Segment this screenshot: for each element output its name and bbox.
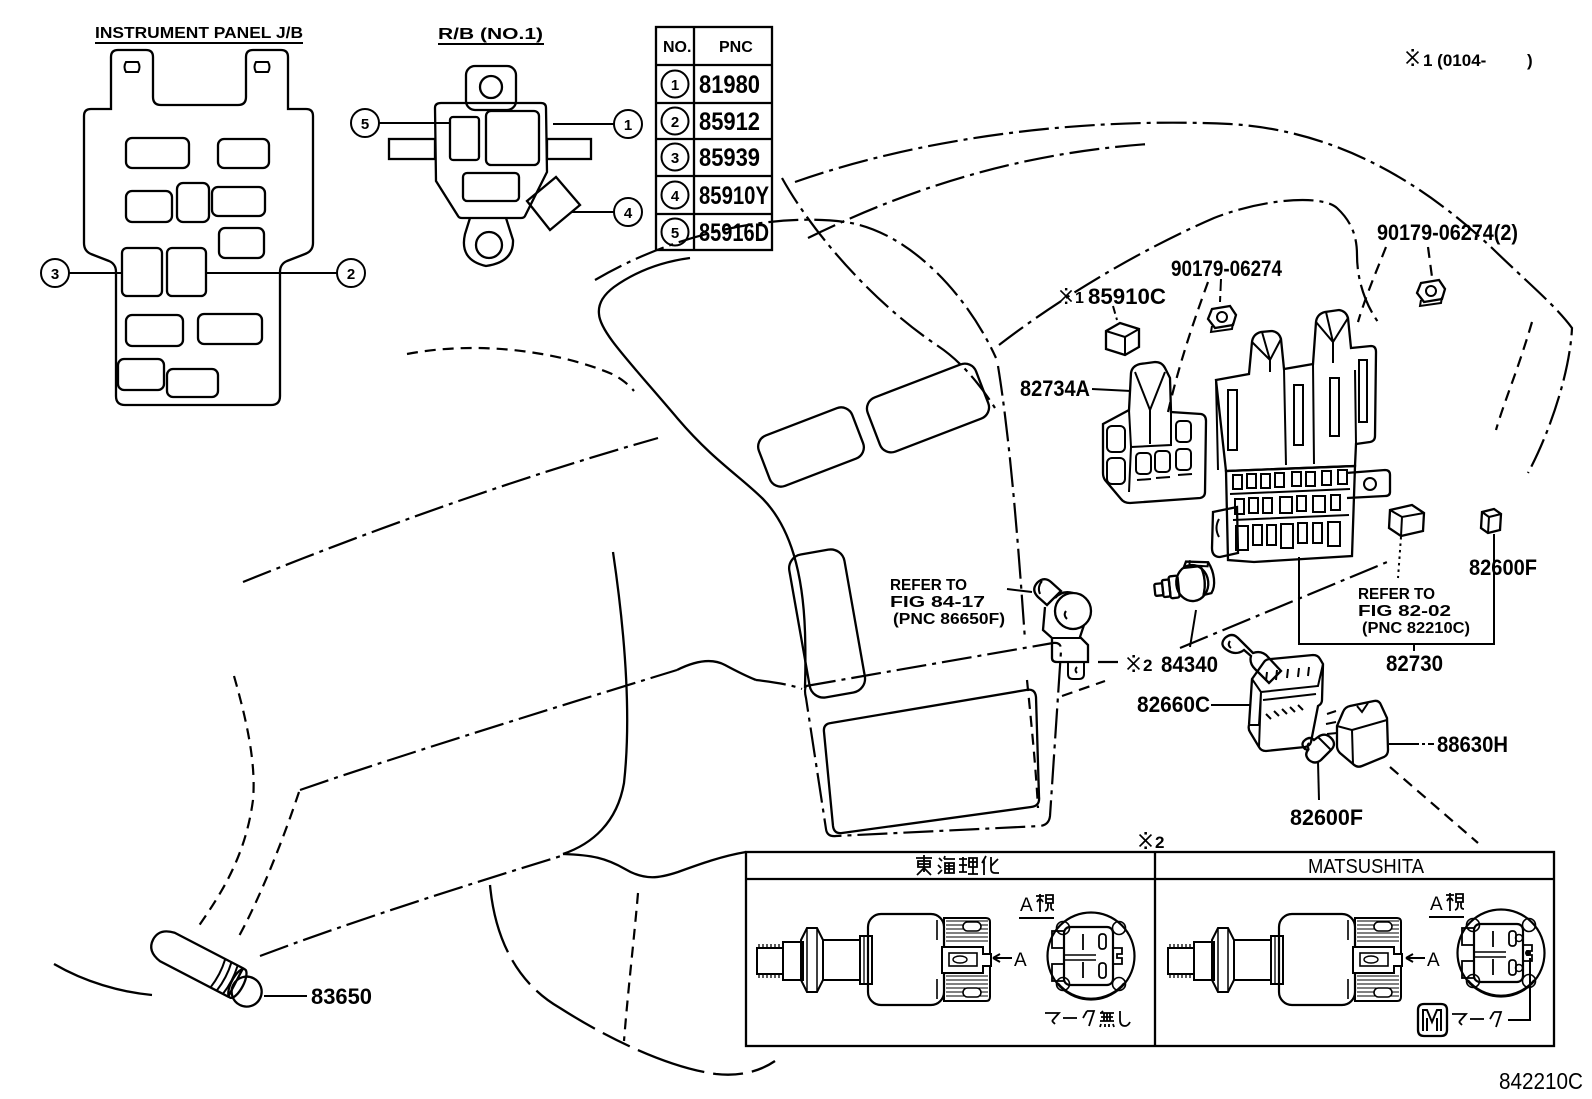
svg-text:90179-06274(2): 90179-06274(2)	[1377, 220, 1518, 245]
svg-text:3: 3	[51, 266, 59, 283]
svg-text:REFER TO: REFER TO	[890, 577, 967, 594]
svg-text:): )	[1527, 51, 1533, 70]
svg-text:82734A: 82734A	[1020, 376, 1090, 401]
svg-text:85939: 85939	[699, 144, 760, 172]
svg-text:5: 5	[361, 116, 369, 133]
svg-text:(PNC 82210C): (PNC 82210C)	[1362, 620, 1470, 637]
svg-text:85910Y: 85910Y	[699, 182, 769, 210]
svg-text:82600F: 82600F	[1469, 555, 1537, 580]
svg-text:1: 1	[1075, 290, 1084, 307]
svg-text:82730: 82730	[1386, 651, 1443, 676]
svg-text:1 (0104-: 1 (0104-	[1423, 51, 1486, 70]
svg-text:842210C: 842210C	[1499, 1068, 1583, 1094]
svg-text:88630H: 88630H	[1437, 732, 1508, 757]
svg-text:90179-06274: 90179-06274	[1171, 256, 1283, 281]
svg-text:3: 3	[671, 150, 679, 167]
svg-text:5: 5	[671, 225, 679, 242]
svg-text:85912: 85912	[699, 108, 760, 136]
svg-text:81980: 81980	[699, 71, 760, 99]
svg-text:84340: 84340	[1161, 652, 1218, 677]
svg-text:85910C: 85910C	[1088, 284, 1166, 309]
svg-text:INSTRUMENT PANEL J/B: INSTRUMENT PANEL J/B	[95, 25, 303, 42]
svg-text:A: A	[1014, 950, 1027, 971]
svg-text:A: A	[1020, 895, 1033, 916]
svg-text:FIG 84-17: FIG 84-17	[890, 594, 985, 611]
svg-text:A: A	[1430, 894, 1443, 915]
svg-text:2: 2	[1143, 656, 1152, 675]
svg-text:FIG 82-02: FIG 82-02	[1358, 603, 1451, 620]
svg-text:2: 2	[671, 114, 679, 131]
svg-text:A: A	[1427, 950, 1440, 971]
svg-text:2: 2	[347, 266, 355, 283]
svg-text:R/B (NO.1): R/B (NO.1)	[438, 26, 543, 43]
svg-text:PNC: PNC	[719, 39, 753, 56]
svg-text:82600F: 82600F	[1290, 805, 1363, 830]
svg-text:2: 2	[1155, 833, 1164, 852]
svg-text:1: 1	[671, 77, 679, 94]
svg-text:NO.: NO.	[663, 39, 691, 56]
svg-text:(PNC 86650F): (PNC 86650F)	[893, 611, 1005, 628]
svg-text:MATSUSHITA: MATSUSHITA	[1308, 856, 1425, 878]
svg-text:4: 4	[671, 188, 680, 205]
svg-text:4: 4	[624, 205, 633, 222]
svg-text:85916D: 85916D	[699, 219, 769, 247]
svg-text:82660C: 82660C	[1137, 692, 1210, 717]
svg-text:REFER TO: REFER TO	[1358, 586, 1435, 603]
svg-text:83650: 83650	[311, 984, 372, 1009]
svg-text:1: 1	[624, 117, 632, 134]
